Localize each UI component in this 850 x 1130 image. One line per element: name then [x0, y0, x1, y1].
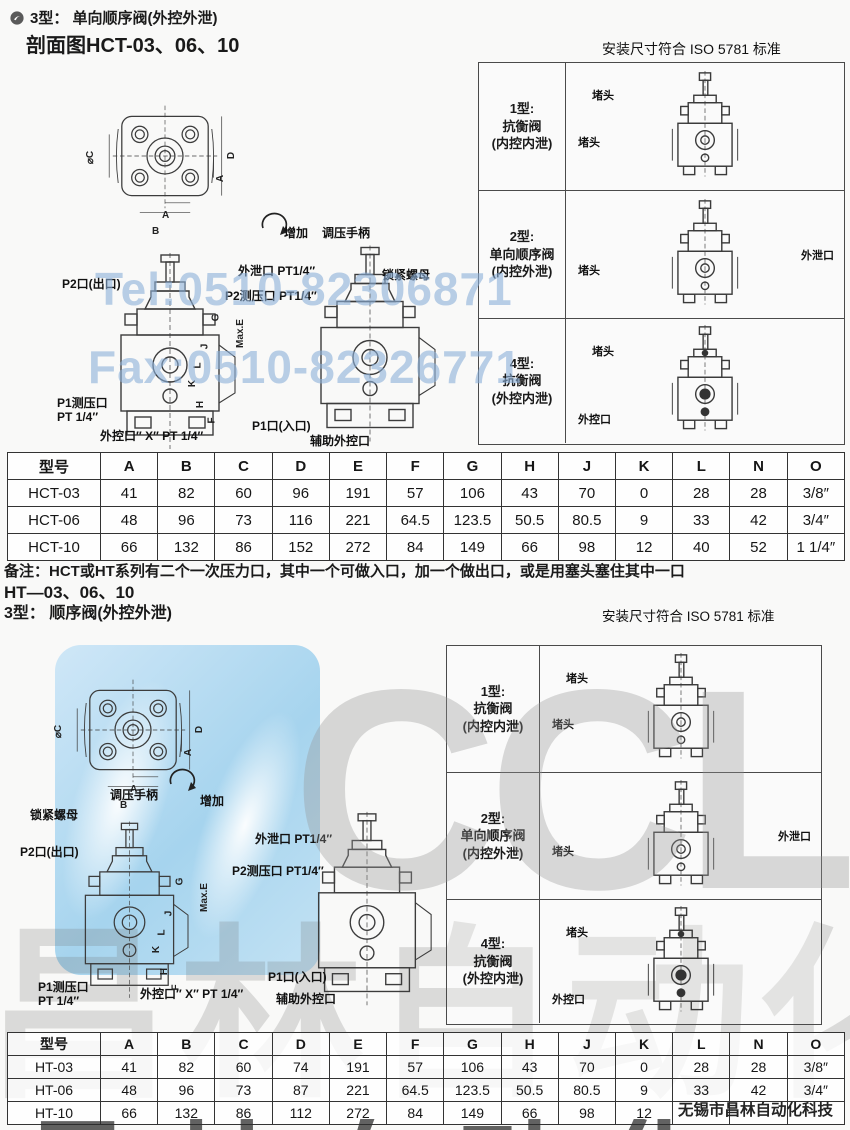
- column-header-7: G: [444, 453, 501, 480]
- model-cell: HT-06: [8, 1079, 101, 1102]
- label-p2-port: P2口(出口): [62, 275, 121, 292]
- valve-front-drawing: [660, 71, 750, 183]
- model-cell: HCT-03: [8, 480, 101, 507]
- dim-cell: 87: [272, 1079, 329, 1102]
- type-label: 1型: 抗衡阀 (内控内泄): [479, 63, 566, 190]
- label-ext-ctrl-port: 外控口″ X″ PT 1/4″: [100, 427, 203, 444]
- dim-cell: 57: [387, 1056, 444, 1079]
- type-image-cell: 堵头 堵头: [540, 646, 821, 772]
- dim-cell: 82: [158, 1056, 215, 1079]
- port-label-bottom: 堵头: [552, 716, 574, 732]
- type-image-cell: 堵头 外控口: [566, 319, 844, 443]
- dim-cell: 70: [558, 1056, 615, 1079]
- dim-cell: 12: [615, 534, 672, 561]
- type-image-cell: 堵头 外泄口: [566, 191, 844, 318]
- dim-label: L: [193, 362, 204, 368]
- section-title: 3型： 单向顺序阀(外控外泄): [30, 7, 218, 28]
- model-cell: HT-03: [8, 1056, 101, 1079]
- top-diagram-area: ⌀C D A A B 增加 调压手柄 P2口(出口) P1测压口 PT 1/4″…: [0, 60, 850, 455]
- dim-cell: 106: [444, 1056, 501, 1079]
- table-row-HCT-06: HCT-0648967311622164.5123.550.580.593342…: [8, 507, 845, 534]
- label-p2-gauge: P2测压口 PT1/4″: [225, 287, 317, 304]
- dim-cell: 43: [501, 480, 558, 507]
- dim-cell: 106: [444, 480, 501, 507]
- label-p1-gauge: P1测压口: [57, 394, 108, 411]
- type-image-cell: 堵头 外泄口: [540, 773, 821, 899]
- label-aux-ctrl: 辅助外控口: [310, 432, 370, 449]
- column-header-11: L: [673, 1033, 730, 1056]
- model-cell: HCT-06: [8, 507, 101, 534]
- dim-label: F: [171, 984, 182, 990]
- type-row-1: 1型: 抗衡阀 (内控内泄) 堵头 堵头: [479, 63, 844, 190]
- dim-label: B: [152, 226, 159, 237]
- dim-cell: 60: [215, 1056, 272, 1079]
- dim-cell: 50.5: [501, 1079, 558, 1102]
- hct-dimension-table: 型号ABCDEFGHJKLNOHCT-034182609619157106437…: [7, 452, 845, 561]
- valve-front-drawing: [660, 325, 750, 437]
- dim-cell: 41: [101, 480, 158, 507]
- dim-cell: 152: [272, 534, 329, 561]
- dim-cell: 221: [329, 507, 386, 534]
- label-p1-gauge-size: PT 1/4″: [38, 994, 79, 1008]
- section-bullet-icon: [10, 11, 24, 25]
- type-label: 4型: 抗衡阀 (外控内泄): [479, 319, 566, 443]
- dim-cell: 96: [158, 507, 215, 534]
- dim-cell: 123.5: [444, 1079, 501, 1102]
- dim-cell: 41: [101, 1056, 158, 1079]
- port-label-top: 堵头: [566, 924, 588, 940]
- port-label-right: 外泄口: [801, 247, 834, 263]
- column-header-1: A: [101, 453, 158, 480]
- rotation-arrow-icon: [166, 764, 200, 794]
- label-lock-nut: 锁紧螺母: [382, 266, 430, 283]
- iso-standard-note: 安装尺寸符合 ISO 5781 标准: [602, 39, 781, 59]
- valve-type-panel: 1型: 抗衡阀 (内控内泄) 堵头 堵头 2型: 单向顺序阀 (内控外泄) 堵头…: [478, 62, 845, 445]
- dim-cell: 132: [158, 1102, 215, 1125]
- dim-label: D: [194, 726, 205, 733]
- dim-cell: 57: [387, 480, 444, 507]
- company-name-overlay: 无锡市昌林自动化科技: [678, 1098, 833, 1120]
- column-header-10: K: [615, 1033, 672, 1056]
- dim-cell: 12: [615, 1102, 672, 1125]
- dim-cell: 48: [101, 1079, 158, 1102]
- column-header-5: E: [329, 453, 386, 480]
- column-header-12: N: [730, 1033, 787, 1056]
- dim-cell: 96: [158, 1079, 215, 1102]
- type-image-cell: 堵头 堵头: [566, 63, 844, 190]
- dim-cell: 64.5: [387, 507, 444, 534]
- port-label-top: 堵头: [592, 87, 614, 103]
- iso-standard-note-2: 安装尺寸符合 ISO 5781 标准: [602, 605, 775, 625]
- dim-cell: 112: [272, 1102, 329, 1125]
- dim-cell: 28: [673, 480, 730, 507]
- dim-cell: 1 1/4″: [787, 534, 844, 561]
- dim-cell: 3/8″: [787, 480, 844, 507]
- port-label-bottom: 外控口: [578, 411, 611, 427]
- type-label: 2型: 单向顺序阀 (内控外泄): [479, 191, 566, 318]
- header-row: 型号ABCDEFGHJKLNO: [8, 1033, 845, 1056]
- label-p2-gauge: P2测压口 PT1/4″: [232, 862, 324, 879]
- port-label-bottom: 堵头: [578, 262, 600, 278]
- model-cell: HCT-10: [8, 534, 101, 561]
- dim-label: H: [159, 968, 170, 975]
- label-p1-port: P1口(入口): [268, 968, 327, 985]
- port-label-bottom: 堵头: [578, 134, 600, 150]
- dim-cell: 3/8″: [787, 1056, 844, 1079]
- port-label-right: 外泄口: [778, 828, 811, 844]
- dim-cell: 33: [673, 507, 730, 534]
- dim-cell: 86: [215, 1102, 272, 1125]
- dim-cell: 96: [272, 480, 329, 507]
- label-increase: 增加: [200, 792, 224, 809]
- label-drain-port: 外泄口 PT1/4″: [238, 262, 315, 279]
- dim-cell: 149: [444, 534, 501, 561]
- dim-label: A: [183, 749, 194, 756]
- dim-cell: 43: [501, 1056, 558, 1079]
- port-label-top: 堵头: [566, 670, 588, 686]
- column-header-12: N: [730, 453, 787, 480]
- column-header-13: O: [787, 1033, 844, 1056]
- dim-cell: 116: [272, 507, 329, 534]
- dim-cell: 98: [558, 534, 615, 561]
- label-p1-gauge-size: PT 1/4″: [57, 410, 98, 424]
- dim-cell: 9: [615, 507, 672, 534]
- dim-label: ⌀C: [53, 725, 64, 738]
- table-row-HCT-03: HCT-0341826096191571064370028283/8″: [8, 480, 845, 507]
- page-header: 3型： 单向顺序阀(外控外泄): [10, 7, 218, 28]
- dim-label: K: [187, 380, 198, 387]
- type-label: 1型: 抗衡阀 (内控内泄): [447, 646, 540, 772]
- column-header-6: F: [387, 453, 444, 480]
- column-header-8: H: [501, 453, 558, 480]
- dim-cell: 84: [387, 1102, 444, 1125]
- dim-cell: 3/4″: [787, 507, 844, 534]
- port-label-top: 堵头: [592, 343, 614, 359]
- dim-cell: 272: [329, 534, 386, 561]
- table-row-HT-03: HT-0341826074191571064370028283/8″: [8, 1056, 845, 1079]
- type-label: 2型: 单向顺序阀 (内控外泄): [447, 773, 540, 899]
- column-header-13: O: [787, 453, 844, 480]
- column-header-6: F: [387, 1033, 444, 1056]
- column-header-3: C: [215, 453, 272, 480]
- dim-label: D: [226, 152, 237, 159]
- column-header-0: 型号: [8, 1033, 101, 1056]
- dim-label: ⌀C: [85, 151, 96, 164]
- type-image-cell: 堵头 外控口: [540, 900, 821, 1023]
- dim-cell: 66: [501, 1102, 558, 1125]
- header-row: 型号ABCDEFGHJKLNO: [8, 453, 845, 480]
- dim-label: J: [199, 344, 210, 350]
- dim-label: L: [157, 929, 168, 935]
- port-label-bottom: 堵头: [552, 843, 574, 859]
- dim-cell: 73: [215, 1079, 272, 1102]
- dim-cell: 221: [329, 1079, 386, 1102]
- column-header-7: G: [444, 1033, 501, 1056]
- section2-title: 3型： 顺序阀(外控外泄): [4, 599, 172, 623]
- flange-top-view-drawing: [102, 102, 228, 219]
- dim-label: H: [195, 401, 206, 408]
- dim-cell: 191: [329, 1056, 386, 1079]
- column-header-8: H: [501, 1033, 558, 1056]
- type-label: 4型: 抗衡阀 (外控内泄): [447, 900, 540, 1023]
- label-handle: 调压手柄: [322, 224, 370, 241]
- column-header-0: 型号: [8, 453, 101, 480]
- label-p2-port: P2口(出口): [20, 843, 79, 860]
- dim-cell: 28: [730, 480, 787, 507]
- column-header-4: D: [272, 1033, 329, 1056]
- dim-cell: 272: [329, 1102, 386, 1125]
- label-p1-gauge: P1测压口: [38, 978, 89, 995]
- dim-label: A: [162, 210, 169, 221]
- column-header-3: C: [215, 1033, 272, 1056]
- type-row-2: 2型: 单向顺序阀 (内控外泄) 堵头 外泄口: [479, 190, 844, 318]
- catalog-page: Tel:0510-82306871 Fax:0510-82326771 CCLa…: [0, 0, 850, 1130]
- port-label-bottom: 外控口: [552, 991, 585, 1007]
- dim-cell: 82: [158, 480, 215, 507]
- label-increase: 增加: [284, 224, 308, 241]
- dim-cell: 60: [215, 480, 272, 507]
- column-header-1: A: [101, 1033, 158, 1056]
- page-subtitle: 剖面图HCT-03、06、10: [26, 29, 239, 58]
- valve-front-drawing: [636, 653, 726, 765]
- valve-front-drawing: [636, 780, 726, 892]
- dim-cell: 0: [615, 1056, 672, 1079]
- dim-label: K: [151, 946, 162, 953]
- column-header-9: J: [558, 453, 615, 480]
- dim-cell: 80.5: [558, 507, 615, 534]
- type-row-3: 4型: 抗衡阀 (外控内泄) 堵头 外控口: [447, 899, 821, 1023]
- dim-cell: 40: [673, 534, 730, 561]
- dim-cell: 86: [215, 534, 272, 561]
- type-row-1: 1型: 抗衡阀 (内控内泄) 堵头 堵头: [447, 646, 821, 772]
- dim-cell: 66: [501, 534, 558, 561]
- dim-cell: 132: [158, 534, 215, 561]
- column-header-10: K: [615, 453, 672, 480]
- dim-cell: 66: [101, 534, 158, 561]
- dim-cell: 42: [730, 507, 787, 534]
- column-header-2: B: [158, 453, 215, 480]
- dim-label: G: [210, 314, 221, 322]
- dim-cell: 52: [730, 534, 787, 561]
- type-row-3: 4型: 抗衡阀 (外控内泄) 堵头 外控口: [479, 318, 844, 443]
- column-header-9: J: [558, 1033, 615, 1056]
- valve-front-drawing: [636, 906, 726, 1018]
- label-ext-ctrl-port: 外控口″ X″ PT 1/4″: [140, 985, 243, 1002]
- label-p1-port: P1口(入口): [252, 417, 311, 434]
- dim-cell: 70: [558, 480, 615, 507]
- dim-cell: 149: [444, 1102, 501, 1125]
- dim-cell: 50.5: [501, 507, 558, 534]
- label-drain-port: 外泄口 PT1/4″: [255, 830, 332, 847]
- column-header-5: E: [329, 1033, 386, 1056]
- dim-label: F: [207, 417, 218, 423]
- dim-cell: 48: [101, 507, 158, 534]
- valve-type-panel-2: 1型: 抗衡阀 (内控内泄) 堵头 堵头 2型: 单向顺序阀 (内控外泄) 堵头…: [446, 645, 822, 1025]
- dim-label: A: [215, 175, 226, 182]
- dim-cell: 28: [730, 1056, 787, 1079]
- dim-cell: 98: [558, 1102, 615, 1125]
- bottom-diagram-area: ⌀C D A A B 调压手柄 增加 锁紧螺母 P2口(出口) P1测压口 PT…: [0, 630, 850, 1030]
- label-handle: 调压手柄: [110, 786, 158, 803]
- dim-cell: 28: [673, 1056, 730, 1079]
- dim-cell: 191: [329, 480, 386, 507]
- label-aux-ctrl: 辅助外控口: [276, 990, 336, 1007]
- dim-label: J: [163, 911, 174, 917]
- column-header-2: B: [158, 1033, 215, 1056]
- type-row-2: 2型: 单向顺序阀 (内控外泄) 堵头 外泄口: [447, 772, 821, 899]
- dim-cell: 123.5: [444, 507, 501, 534]
- dim-cell: 64.5: [387, 1079, 444, 1102]
- valve-front-drawing: [660, 199, 750, 311]
- dim-cell: 0: [615, 480, 672, 507]
- dim-label: Max.E: [235, 319, 246, 348]
- dim-label: G: [174, 878, 185, 886]
- dim-cell: 9: [615, 1079, 672, 1102]
- dim-cell: 84: [387, 534, 444, 561]
- dim-cell: 80.5: [558, 1079, 615, 1102]
- column-header-4: D: [272, 453, 329, 480]
- model-cell: HT-10: [8, 1102, 101, 1125]
- column-header-11: L: [673, 453, 730, 480]
- dim-label: Max.E: [199, 883, 210, 912]
- table-row-HCT-10: HCT-1066132861522728414966981240521 1/4″: [8, 534, 845, 561]
- dim-cell: 66: [101, 1102, 158, 1125]
- label-lock-nut: 锁紧螺母: [30, 806, 78, 823]
- dim-cell: 73: [215, 507, 272, 534]
- dim-cell: 74: [272, 1056, 329, 1079]
